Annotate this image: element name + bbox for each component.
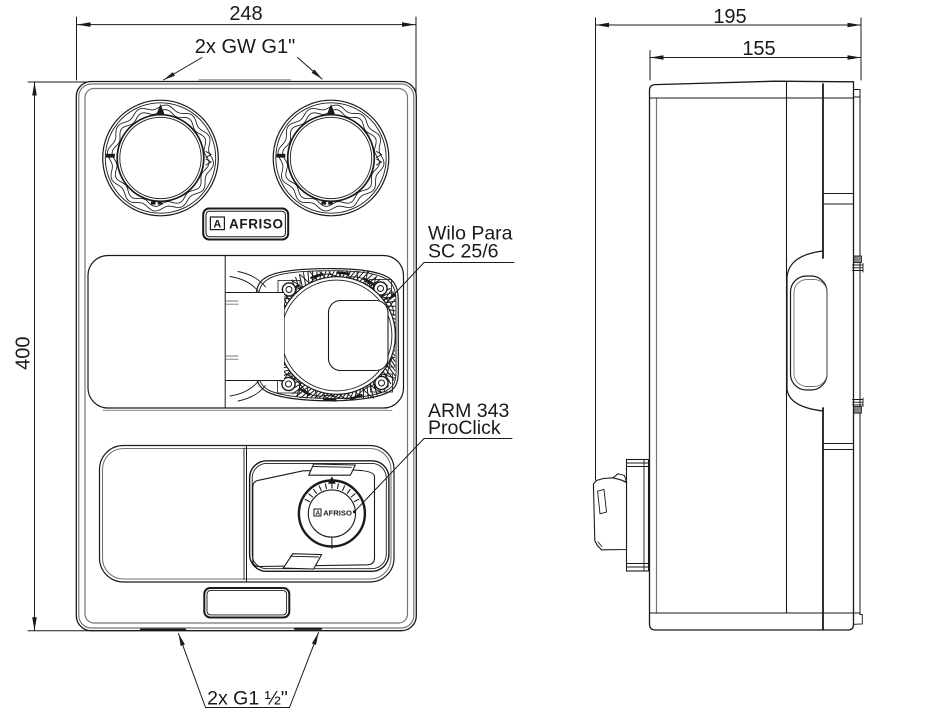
svg-text:2x GW G1": 2x GW G1" [195,36,295,58]
svg-text:248: 248 [229,3,262,25]
svg-text:195: 195 [713,6,746,28]
svg-text:2x G1 ½": 2x G1 ½" [207,688,288,710]
svg-text:A: A [213,219,221,231]
svg-text:155: 155 [742,38,775,60]
svg-text:AFRISO: AFRISO [229,217,284,232]
svg-text:AFRISO: AFRISO [323,509,352,518]
svg-text:400: 400 [13,337,35,370]
svg-text:A: A [316,511,321,517]
svg-text:ProClick: ProClick [428,417,501,439]
svg-text:SC 25/6: SC 25/6 [428,241,498,263]
